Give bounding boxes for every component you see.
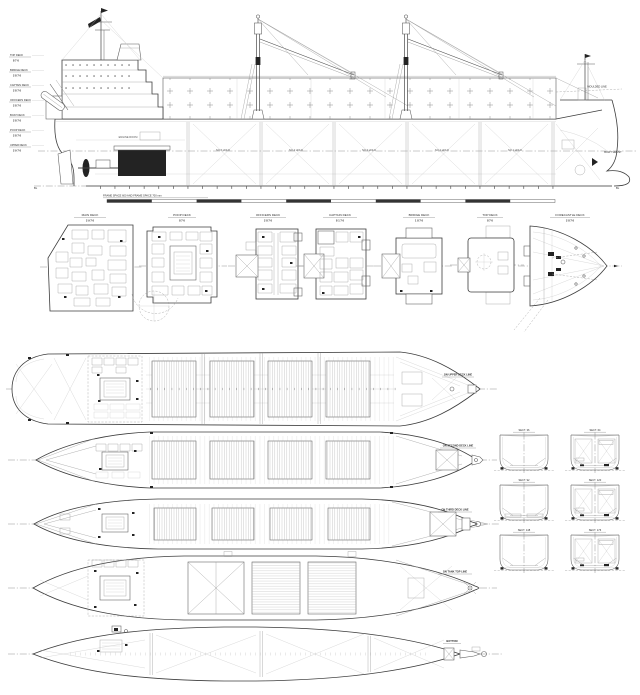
deck-ladder-label: OFFICERS DECK [10,98,31,102]
plan-second-deck: ON SECOND DECK LINE [8,432,497,488]
bow-thrust-label: BOW THRUST [604,150,622,154]
section-frame-3: SECT. 176 [565,528,625,573]
plan-e-label: BOTTOM [446,639,457,643]
plan-b-label: ON SECOND DECK LINE [443,444,474,448]
plan-dim: 8 7 6 [487,219,493,223]
plan-dim: 8 7 6 [179,219,185,223]
radar-scanner [88,17,101,28]
moulded-line-label: MOULDED LINE [587,85,607,89]
section-title: SECT. 36 [519,428,531,432]
fore-mast [560,54,605,101]
hold-label-5: NO.5 HOLD [216,148,230,152]
plan-poop-deck [132,227,227,321]
profile-view: MOULDED LINE BOW THRUST FRAME SPACE 600 … [34,8,636,203]
hatch-cover-block [163,76,598,119]
section-title: SECT. 92 [519,478,531,482]
plan-title: FORECASTLE DECK [555,213,584,217]
deck-ladder-label: CAPTAIN DECK [10,83,29,87]
transverse-sections: SECT. 36 SECT. 64 SECT. 92 SECT. 120 SEC… [494,428,625,573]
mast-pennant [101,8,108,13]
scale-bar [107,200,555,203]
deck-ladder-label: BOAT DECK [10,113,25,117]
hold-label-3: NO.3 HOLD [362,148,376,152]
plan-dim: 2 8 7 6 [264,219,272,223]
deck-ladder-dim: 2 8 7 6 [13,104,21,108]
deck-ladder-label: BRIDGE DECK [10,68,28,72]
section-title: SECT. 148 [518,528,531,532]
section-title: SECT. 176 [589,528,602,532]
deck-ladder-dim: 2 9 7 6 [13,149,21,153]
hull-deck-plans: ON UPPER DECK LINE ON SECOND DECK LINE [6,352,502,681]
deck-ladder-dim: 2 8 7 6 [13,89,21,93]
plan-dim: 8 1 7 6 [336,219,344,223]
deck-ladder-dim: 2 8 7 6 [13,119,21,123]
hold-bulkheads [187,122,600,186]
plan-tank-top: ON TANK TOP LINE [8,552,497,621]
section-hold-2: SECT. 92 [494,478,554,523]
section-title: SECT. 64 [590,428,602,432]
section-frame-1: SECT. 64 [565,428,625,473]
plan-third-deck: ON THIRD DECK LINE [8,499,500,549]
deck-level-ladder: TOP DECK 8 7 6 BRIDGE DECK 2 8 7 6 CAPTA… [9,53,44,153]
plan-dim: 2 9 7 6 [86,219,94,223]
deck-ladder-dim: 2 8 7 6 [13,134,21,138]
plan-officers-deck [228,229,308,299]
plan-captain-deck [296,229,374,299]
bow-stem-and-bulb [607,100,630,186]
frame-space-note: FRAME SPACE 600 AND FRAME SPACE 700 mm [103,194,162,198]
rudder [58,150,73,184]
ship-general-arrangement-drawing: MOULDED LINE BOW THRUST FRAME SPACE 600 … [0,0,640,695]
plan-c-label: ON THIRD DECK LINE [441,508,469,512]
deck-ladder-label: UPPER DECK [10,143,27,147]
plan-title: TOP DECK [482,213,497,217]
section-frame-2: SECT. 120 [565,478,625,523]
fore-peak-detail [560,130,606,175]
hold-label-2: NO.2 HOLD [435,148,449,152]
plan-title: BRIDGE DECK [409,213,430,217]
deck-ladder-dim: 8 7 6 [13,59,19,63]
plan-bottom: BOTTOM [8,626,502,681]
hold-label-1: NO.1 HOLD [508,148,522,152]
baseline-mark-right: BL [616,186,620,190]
plan-top-deck [450,226,524,304]
plan-dim: 2 8 7 6 [566,219,574,223]
plan-title: OFFICERS DECK [256,213,280,217]
midplan-titles: MAIN DECK2 9 7 6 POOP DECK8 7 6 OFFICERS… [74,213,590,223]
plan-title: MAIN DECK [82,213,99,217]
hold-label-4: NO.4 HOLD [289,148,303,152]
deck-ladder-label: TOP DECK [10,53,23,57]
plan-forecastle-deck [514,226,622,332]
plan-main-deck [40,225,143,311]
plan-title: POOP DECK [173,213,191,217]
engine-room-label: ENGINE ROOM [119,135,138,139]
deck-ladder-label: POOP DECK [10,128,26,132]
section-hold-3: SECT. 148 [494,528,554,573]
plan-d-label: ON TANK TOP LINE [443,570,467,574]
section-hold-1: SECT. 36 [494,428,554,473]
plan-upper-deck: ON UPPER DECK LINE [6,352,497,426]
ga-drawing-sheet: MOULDED LINE BOW THRUST FRAME SPACE 600 … [0,0,640,695]
accommodation-deck-plans: MAIN DECK2 9 7 6 POOP DECK8 7 6 OFFICERS… [40,213,622,332]
plan-bridge-deck [374,228,452,304]
plan-title: CAPTAIN DECK [329,213,351,217]
plan-a-label: ON UPPER DECK LINE [444,373,473,377]
plan-dim: 1 8 7 6 [415,219,423,223]
section-title: SECT. 120 [589,478,602,482]
deck-ladder-dim: 2 8 7 6 [13,74,21,78]
baseline-mark-left: BL [34,186,38,190]
funnel-top-hatched [486,226,510,238]
